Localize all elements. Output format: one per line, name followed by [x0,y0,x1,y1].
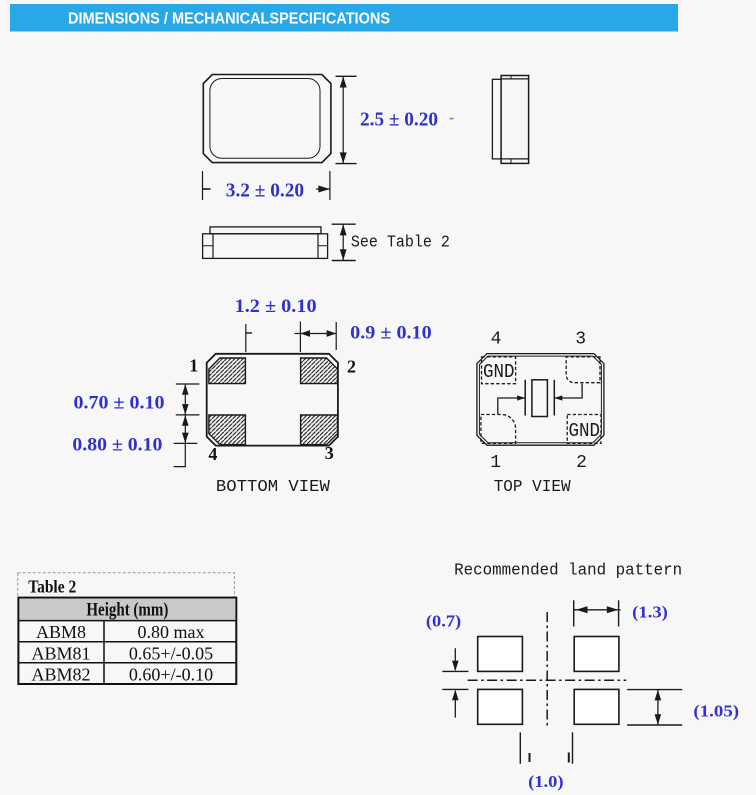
svg-text:3: 3 [325,443,334,463]
svg-text:0.70 ± 0.10: 0.70 ± 0.10 [74,393,165,414]
svg-text:2: 2 [576,453,587,473]
svg-text:(1.05): (1.05) [693,702,739,721]
svg-text:GND: GND [483,361,515,383]
svg-text:0.80 ± 0.10: 0.80 ± 0.10 [72,435,162,456]
svg-text:1: 1 [189,355,198,375]
svg-text:1: 1 [490,453,501,473]
svg-text:0.60+/-0.10: 0.60+/-0.10 [129,665,213,685]
svg-text:(1.0): (1.0) [528,772,564,791]
svg-text:1.2 ± 0.10: 1.2 ± 0.10 [235,296,317,317]
svg-text:(0.7): (0.7) [426,611,461,630]
svg-text:See Table 2: See Table 2 [351,234,450,253]
svg-text:Table 2: Table 2 [28,577,76,597]
svg-text:3.2 ± 0.20: 3.2 ± 0.20 [226,180,304,202]
svg-text:0.9 ± 0.10: 0.9 ± 0.10 [350,322,432,343]
svg-text:2.5 ± 0.20: 2.5 ± 0.20 [360,109,438,131]
svg-text:TOP VIEW: TOP VIEW [494,478,572,497]
svg-text:ABM82: ABM82 [31,665,90,685]
svg-text:0.65+/-0.05: 0.65+/-0.05 [129,644,213,664]
svg-text:GND: GND [569,420,601,442]
svg-text:4: 4 [208,444,217,464]
svg-text:0.80 max: 0.80 max [138,622,205,642]
svg-text:ABM8: ABM8 [36,622,86,642]
svg-text:2: 2 [347,357,356,377]
svg-text:(1.3): (1.3) [632,603,668,622]
svg-text:ABM81: ABM81 [31,644,90,664]
svg-text:4: 4 [491,329,502,349]
svg-text:3: 3 [575,329,586,349]
svg-text:BOTTOM VIEW: BOTTOM VIEW [216,478,331,497]
svg-text:Height (mm): Height (mm) [86,600,168,621]
svg-text:Recommended land pattern: Recommended land pattern [454,562,682,581]
svg-text:DIMENSIONS / MECHANICALSPECIFI: DIMENSIONS / MECHANICALSPECIFICATIONS [68,11,390,28]
